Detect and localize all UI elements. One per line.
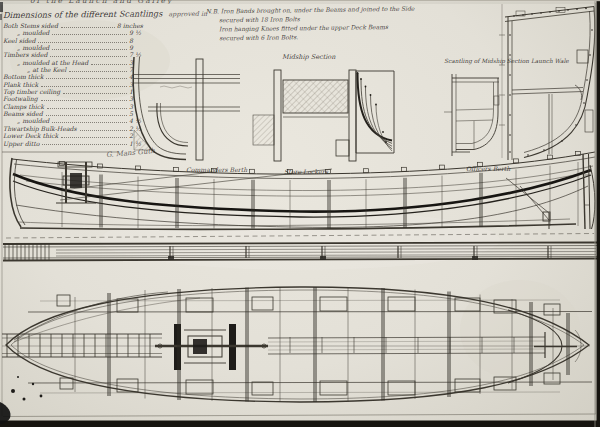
scantlings-title-suffix: approved in xyxy=(162,10,207,18)
row-label: Beams sided xyxy=(3,110,43,117)
table-row: Thwartship Bulk-Heads2 ½ xyxy=(3,125,143,132)
table-row: Keel sided8 xyxy=(3,37,143,44)
cropped-header-text: of the Launch and Galley xyxy=(30,0,173,4)
row-label: „ moulded at the Head xyxy=(3,59,88,66)
scantlings-title: Dimensions of the different Scantlingsap… xyxy=(3,8,203,20)
dotted-leader xyxy=(52,49,127,50)
table-row: Plank thick3 xyxy=(3,81,143,88)
hatches-lower xyxy=(60,373,560,395)
row-value: 9 xyxy=(129,44,143,51)
launch-wale-section-drawing xyxy=(499,4,595,160)
dotted-leader xyxy=(91,64,127,65)
row-value: 3 xyxy=(129,59,143,66)
row-label: „ moulded xyxy=(3,44,49,51)
dotted-leader xyxy=(52,34,127,35)
row-value: 3 xyxy=(129,81,143,88)
row-value: 5 xyxy=(129,110,143,117)
row-value: 1 xyxy=(129,88,143,95)
windlass-plan xyxy=(155,324,268,370)
scantlings-rows: Both Stems sided8 inches „ moulded9 ½ Ke… xyxy=(3,22,143,147)
dotted-leader xyxy=(69,71,127,72)
row-label: „ moulded xyxy=(3,117,49,124)
ink-spots xyxy=(11,376,42,401)
row-label: Plank thick xyxy=(3,81,38,88)
row-label: Both Stems sided xyxy=(3,22,58,29)
table-row: „ moulded at the Head3 xyxy=(3,59,143,66)
row-value: 1 ½ xyxy=(129,140,143,147)
dotted-leader xyxy=(47,108,127,109)
row-label: Keel sided xyxy=(3,37,35,44)
wale-label: Launch Wale xyxy=(531,58,569,64)
table-row: Timbers sided7 ½ xyxy=(3,51,143,58)
row-value: 3 xyxy=(129,95,143,102)
scantling-section-drawing xyxy=(444,74,499,156)
dotted-leader xyxy=(52,122,127,123)
table-row: Both Stems sided8 inches xyxy=(3,22,143,29)
dotted-leader xyxy=(46,115,127,116)
table-row: Top timber ceiling1 xyxy=(3,88,143,95)
row-value: 7 ½ xyxy=(129,51,143,58)
scantlings-title-text: Dimensions of the different Scantlings xyxy=(3,8,163,20)
row-label: „ moulded xyxy=(3,29,49,36)
commanders-berth-label: Commanders Berth xyxy=(186,166,247,173)
scantling-section-label: Scantling of Midship Section xyxy=(444,58,529,64)
row-value: 8 inches xyxy=(117,22,143,29)
row-value: 2 ½ xyxy=(129,125,143,132)
dotted-leader xyxy=(80,130,127,131)
row-value: 8 xyxy=(129,37,143,44)
row-value: 4 ½ xyxy=(129,117,143,124)
officers-berth-label: Officers Berth xyxy=(466,165,510,172)
midship-section-label: Midship Section xyxy=(282,53,335,61)
nb-note: N.B. Iron Bands brought on, under the Be… xyxy=(206,3,428,42)
table-row: Clamps thick3 xyxy=(3,103,143,110)
table-row: Bottom thick4 xyxy=(3,73,143,80)
store-lockers-label: Store Lockers xyxy=(284,168,328,175)
row-label: Thwartship Bulk-Heads xyxy=(3,125,77,132)
row-label: Clamps thick xyxy=(3,103,44,110)
dotted-leader xyxy=(46,78,127,79)
scantlings-table: Dimensions of the different Scantlingsap… xyxy=(3,9,203,147)
row-value: 7 xyxy=(129,66,143,73)
row-label: Top timber ceiling xyxy=(3,88,60,95)
dotted-leader xyxy=(61,27,115,28)
table-row: „ moulded4 ½ xyxy=(3,117,143,124)
table-row: „ at the Keel7 xyxy=(3,66,143,73)
table-row: „ moulded9 ½ xyxy=(3,29,143,36)
rivet-dots xyxy=(509,8,593,156)
table-row: Footwaling3 xyxy=(3,95,143,102)
row-label: „ at the Keel xyxy=(3,66,66,73)
row-label: Bottom thick xyxy=(3,73,43,80)
table-row: „ moulded9 xyxy=(3,44,143,51)
table-row: Beams sided5 xyxy=(3,110,143,117)
dotted-leader xyxy=(41,86,127,87)
scanned-boat-draught-sheet: of the Launch and Galley Dimensions of t… xyxy=(0,0,600,427)
dotted-leader xyxy=(63,93,127,94)
row-value: 9 ½ xyxy=(129,29,143,36)
dotted-leader xyxy=(42,144,127,145)
dotted-leader xyxy=(38,42,127,43)
dotted-leader xyxy=(61,137,127,138)
row-value: 2 xyxy=(129,132,143,139)
row-value: 3 xyxy=(129,103,143,110)
row-label: Lower Deck thick xyxy=(3,132,58,139)
dotted-leader xyxy=(50,56,127,57)
table-row: Lower Deck thick2 xyxy=(3,132,143,139)
dotted-leader xyxy=(41,100,127,101)
table-row: Upper ditto1 ½ xyxy=(3,140,143,147)
stem-laminations xyxy=(5,244,49,260)
row-value: 4 xyxy=(129,73,143,80)
row-label: Footwaling xyxy=(3,95,38,102)
row-label: Timbers sided xyxy=(3,51,47,58)
row-label: Upper ditto xyxy=(3,140,39,147)
